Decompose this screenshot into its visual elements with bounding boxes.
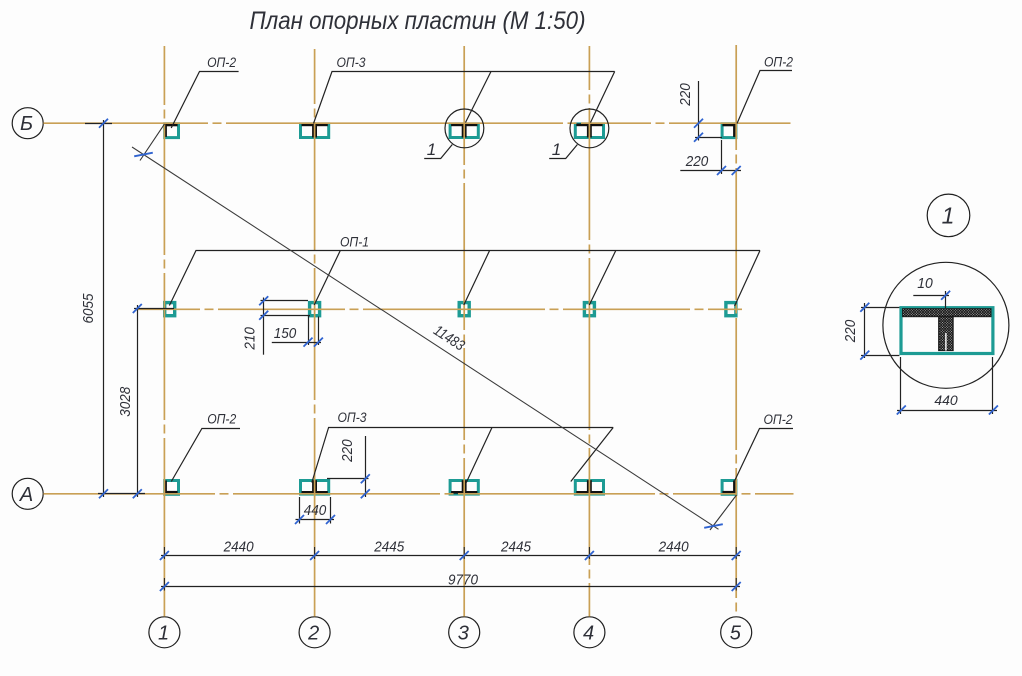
- svg-text:2440: 2440: [658, 539, 689, 556]
- svg-text:1: 1: [158, 622, 169, 644]
- svg-text:440: 440: [934, 392, 958, 408]
- svg-text:ОП-3: ОП-3: [337, 54, 366, 70]
- svg-text:3028: 3028: [117, 386, 134, 417]
- svg-text:220: 220: [339, 439, 356, 463]
- svg-text:2445: 2445: [373, 539, 404, 556]
- svg-text:220: 220: [677, 83, 694, 107]
- svg-text:2: 2: [307, 622, 319, 644]
- svg-text:10: 10: [917, 275, 933, 292]
- svg-text:ОП-2: ОП-2: [764, 54, 793, 70]
- svg-text:План опорных пластин (М 1:50): План опорных пластин (М 1:50): [250, 7, 586, 35]
- svg-text:5: 5: [730, 622, 742, 644]
- svg-text:9770: 9770: [448, 572, 479, 589]
- svg-text:А: А: [19, 484, 33, 506]
- svg-text:ОП-1: ОП-1: [340, 234, 369, 250]
- svg-text:1: 1: [552, 140, 561, 159]
- svg-text:6055: 6055: [80, 293, 97, 324]
- svg-text:1: 1: [427, 140, 436, 159]
- svg-text:210: 210: [242, 327, 259, 351]
- svg-text:2445: 2445: [500, 539, 531, 556]
- svg-text:1: 1: [942, 203, 955, 229]
- svg-text:3: 3: [458, 622, 469, 644]
- svg-text:150: 150: [274, 325, 297, 342]
- svg-text:ОП-2: ОП-2: [764, 411, 793, 427]
- svg-text:220: 220: [842, 319, 859, 343]
- svg-text:220: 220: [685, 153, 709, 170]
- svg-text:2440: 2440: [223, 539, 254, 556]
- svg-text:4: 4: [583, 622, 594, 644]
- svg-text:ОП-3: ОП-3: [338, 409, 367, 425]
- svg-text:Б: Б: [20, 113, 33, 135]
- svg-text:ОП-2: ОП-2: [207, 54, 236, 70]
- svg-text:ОП-2: ОП-2: [207, 411, 236, 427]
- svg-text:440: 440: [304, 502, 327, 519]
